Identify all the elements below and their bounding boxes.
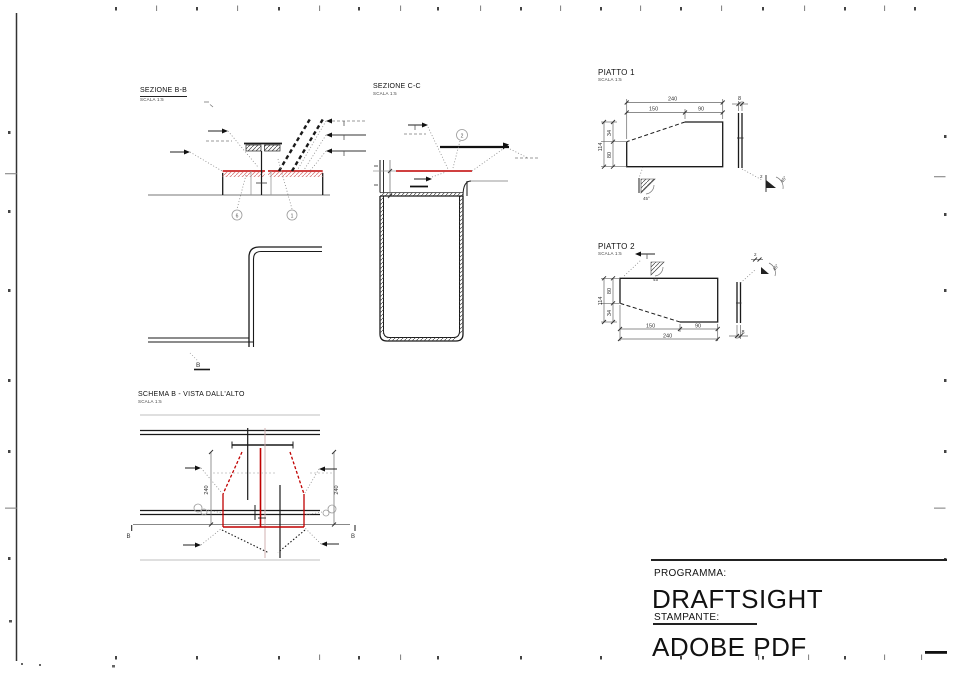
weld-symbol-right: 2 45° (742, 169, 788, 192)
section-marker-right: B (351, 534, 355, 540)
weld-flag-top (404, 123, 448, 170)
printer-label: STAMPANTE: (654, 612, 719, 623)
dim-seg-bottom: 80 (607, 152, 613, 158)
section-marker-left: B (127, 534, 131, 540)
bottom-ruler-bars (319, 655, 922, 661)
dim-left-text: 240 (204, 485, 210, 494)
program-label: PROGRAMMA: (654, 568, 726, 579)
dim-seg-bottom: 34 (607, 310, 613, 316)
dim-thickness: 8 (742, 330, 745, 336)
balloon-text: 2 (461, 134, 464, 140)
view-scale-schema-b: SCALA 1:5 (138, 399, 245, 404)
sezione-cc-drawing: 2 (370, 115, 545, 350)
dashed-member (279, 119, 310, 171)
view-scale-piatto1: SCALA 1:5 (598, 77, 635, 82)
weld-flag-left-1 (170, 150, 222, 172)
tube-section (380, 196, 463, 341)
dim-total: 240 (663, 334, 672, 340)
view-scale-sezione-cc: SCALA 1:5 (373, 91, 421, 96)
weld-size-label: 2 (754, 252, 757, 257)
printer-rule (653, 623, 757, 625)
weld-symbol-right: 2 45° (741, 252, 780, 283)
weld-flag-lower-right (305, 528, 339, 547)
dim-seg-right: 90 (698, 107, 704, 113)
dim-height: 114 (598, 297, 604, 306)
drawing-sheet: SEZIONE B-B SCALA 1:5 (0, 0, 960, 678)
weld-flag-upper-right (305, 467, 337, 494)
view-title-sezione-cc: SEZIONE C-C (373, 83, 421, 91)
balloon-callout-right (328, 505, 336, 513)
weld-angle-label2: 45° (780, 175, 788, 184)
weld-symbol-top: 45° (622, 252, 664, 283)
piatto1-drawing: 240 150 90 114 34 80 8 (595, 90, 805, 215)
plate-outline (620, 278, 718, 322)
right-ruler-ticks (944, 135, 947, 561)
dim-extensions (627, 99, 723, 139)
weld-symbol-left: 45° (639, 167, 655, 201)
program-value: DRAFTSIGHT (652, 584, 823, 615)
printer-value: ADOBE PDF (652, 632, 807, 663)
piatto2-drawing: 150 90 240 114 80 34 45° (595, 243, 805, 355)
dim-left-lines (601, 122, 627, 167)
balloon-left-text: 6 (236, 214, 239, 220)
dim-seg-top: 34 (607, 130, 613, 136)
dim-seg-left: 150 (649, 107, 658, 113)
weld-angle-label: 45° (643, 196, 650, 201)
weld-size-label: 2 (760, 174, 763, 179)
dim-thickness: 8 (738, 96, 741, 102)
plate-outline (627, 122, 723, 167)
dim-right-text: 240 (334, 485, 340, 494)
schema-b-drawing: 240 240 (125, 405, 375, 570)
weld-flag-lower-left (183, 528, 222, 548)
sezione-bb-drawing: 6 1 B (140, 95, 380, 385)
dim-seg-left: 150 (646, 324, 655, 330)
left-ruler-ticks (8, 131, 115, 668)
red-gusset (223, 452, 304, 527)
dim-seg-top: 80 (607, 288, 613, 294)
balloon-right-text: 1 (291, 214, 294, 220)
pipe-elbow (148, 247, 322, 347)
weld-flag-mid (410, 172, 446, 187)
view-title-piatto1: PIATTO 1 (598, 68, 635, 77)
title-block-top-rule (651, 559, 947, 561)
weld-angle-label2: 45° (772, 263, 780, 272)
view-title-schema-b: SCHEMA B - VISTA DALL'ALTO (138, 391, 245, 399)
weld-angle-label: 45° (653, 277, 660, 282)
dim-total: 240 (668, 97, 677, 103)
dim-seg-right: 90 (695, 324, 701, 330)
dim-240-right: 240 (332, 450, 340, 527)
section-marker-b: B (196, 362, 200, 369)
dim-height: 114 (598, 143, 604, 152)
weld-flag-right-3 (310, 149, 366, 172)
top-ruler-ticks (115, 7, 916, 11)
